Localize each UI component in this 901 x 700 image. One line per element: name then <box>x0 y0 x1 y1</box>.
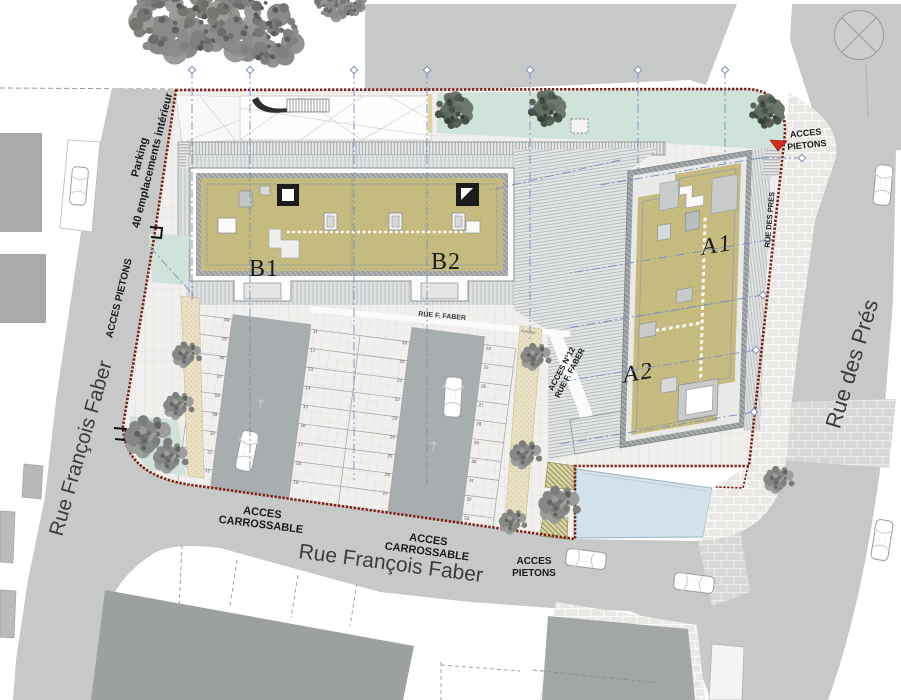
svg-text:B1: B1 <box>249 256 279 282</box>
svg-text:B2: B2 <box>431 249 461 275</box>
svg-text:A2: A2 <box>622 358 654 389</box>
svg-text:A1: A1 <box>700 230 732 261</box>
svg-text:ACCESPIETONS: ACCESPIETONS <box>512 556 556 579</box>
